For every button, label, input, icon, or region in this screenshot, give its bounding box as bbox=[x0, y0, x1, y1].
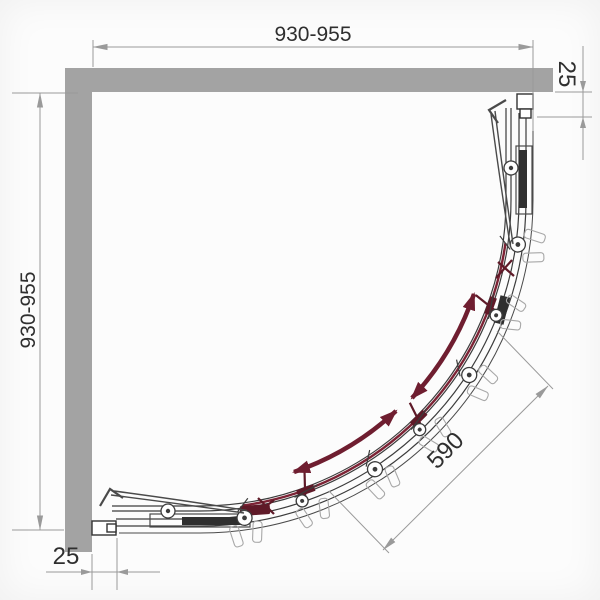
right-wall-profile-insert bbox=[520, 109, 531, 118]
dimension-right-offset: 25 bbox=[537, 46, 592, 160]
dimension-arrow-icon bbox=[580, 117, 586, 128]
right-wall-profile bbox=[517, 94, 533, 109]
roller-assembly bbox=[161, 504, 175, 518]
dimension-bottom-offset: 25 bbox=[46, 538, 160, 590]
shower-enclosure-plan-diagram: 930-955 930-955 25 25 590 bbox=[0, 0, 600, 600]
extension-line bbox=[497, 331, 553, 389]
left-wall bbox=[65, 92, 92, 552]
dimension-label-bottom: 25 bbox=[53, 543, 80, 570]
extension-line bbox=[329, 491, 389, 553]
dimension-label-entry: 590 bbox=[422, 427, 469, 474]
dimension-label-left: 930-955 bbox=[17, 271, 40, 348]
bottom-handle-curve bbox=[111, 495, 244, 513]
dimension-arrow-icon bbox=[81, 569, 92, 575]
dimension-arrow-icon bbox=[117, 569, 128, 575]
dimension-label-right: 25 bbox=[553, 61, 580, 88]
dimension-label-top: 930-955 bbox=[274, 23, 351, 46]
top-wall bbox=[65, 68, 553, 92]
dimension-line bbox=[383, 386, 548, 550]
track-rail-inner bbox=[116, 113, 519, 519]
top-handle-curve bbox=[495, 111, 513, 244]
bottom-fixing-bar bbox=[182, 517, 244, 525]
outer-frame-arc bbox=[119, 117, 533, 533]
roller-assemblies bbox=[161, 161, 548, 548]
enclosure-frame bbox=[112, 108, 533, 533]
slide-direction-arrow-icon bbox=[412, 294, 474, 398]
top-handle-curve bbox=[491, 114, 511, 247]
right-fixing-bar bbox=[519, 150, 527, 208]
diagram-svg: 930-955 930-955 25 25 590 bbox=[0, 0, 600, 600]
roller-assembly bbox=[504, 161, 518, 175]
bottom-handle-curve bbox=[114, 491, 247, 511]
bottom-wall-profile-insert bbox=[107, 524, 116, 532]
